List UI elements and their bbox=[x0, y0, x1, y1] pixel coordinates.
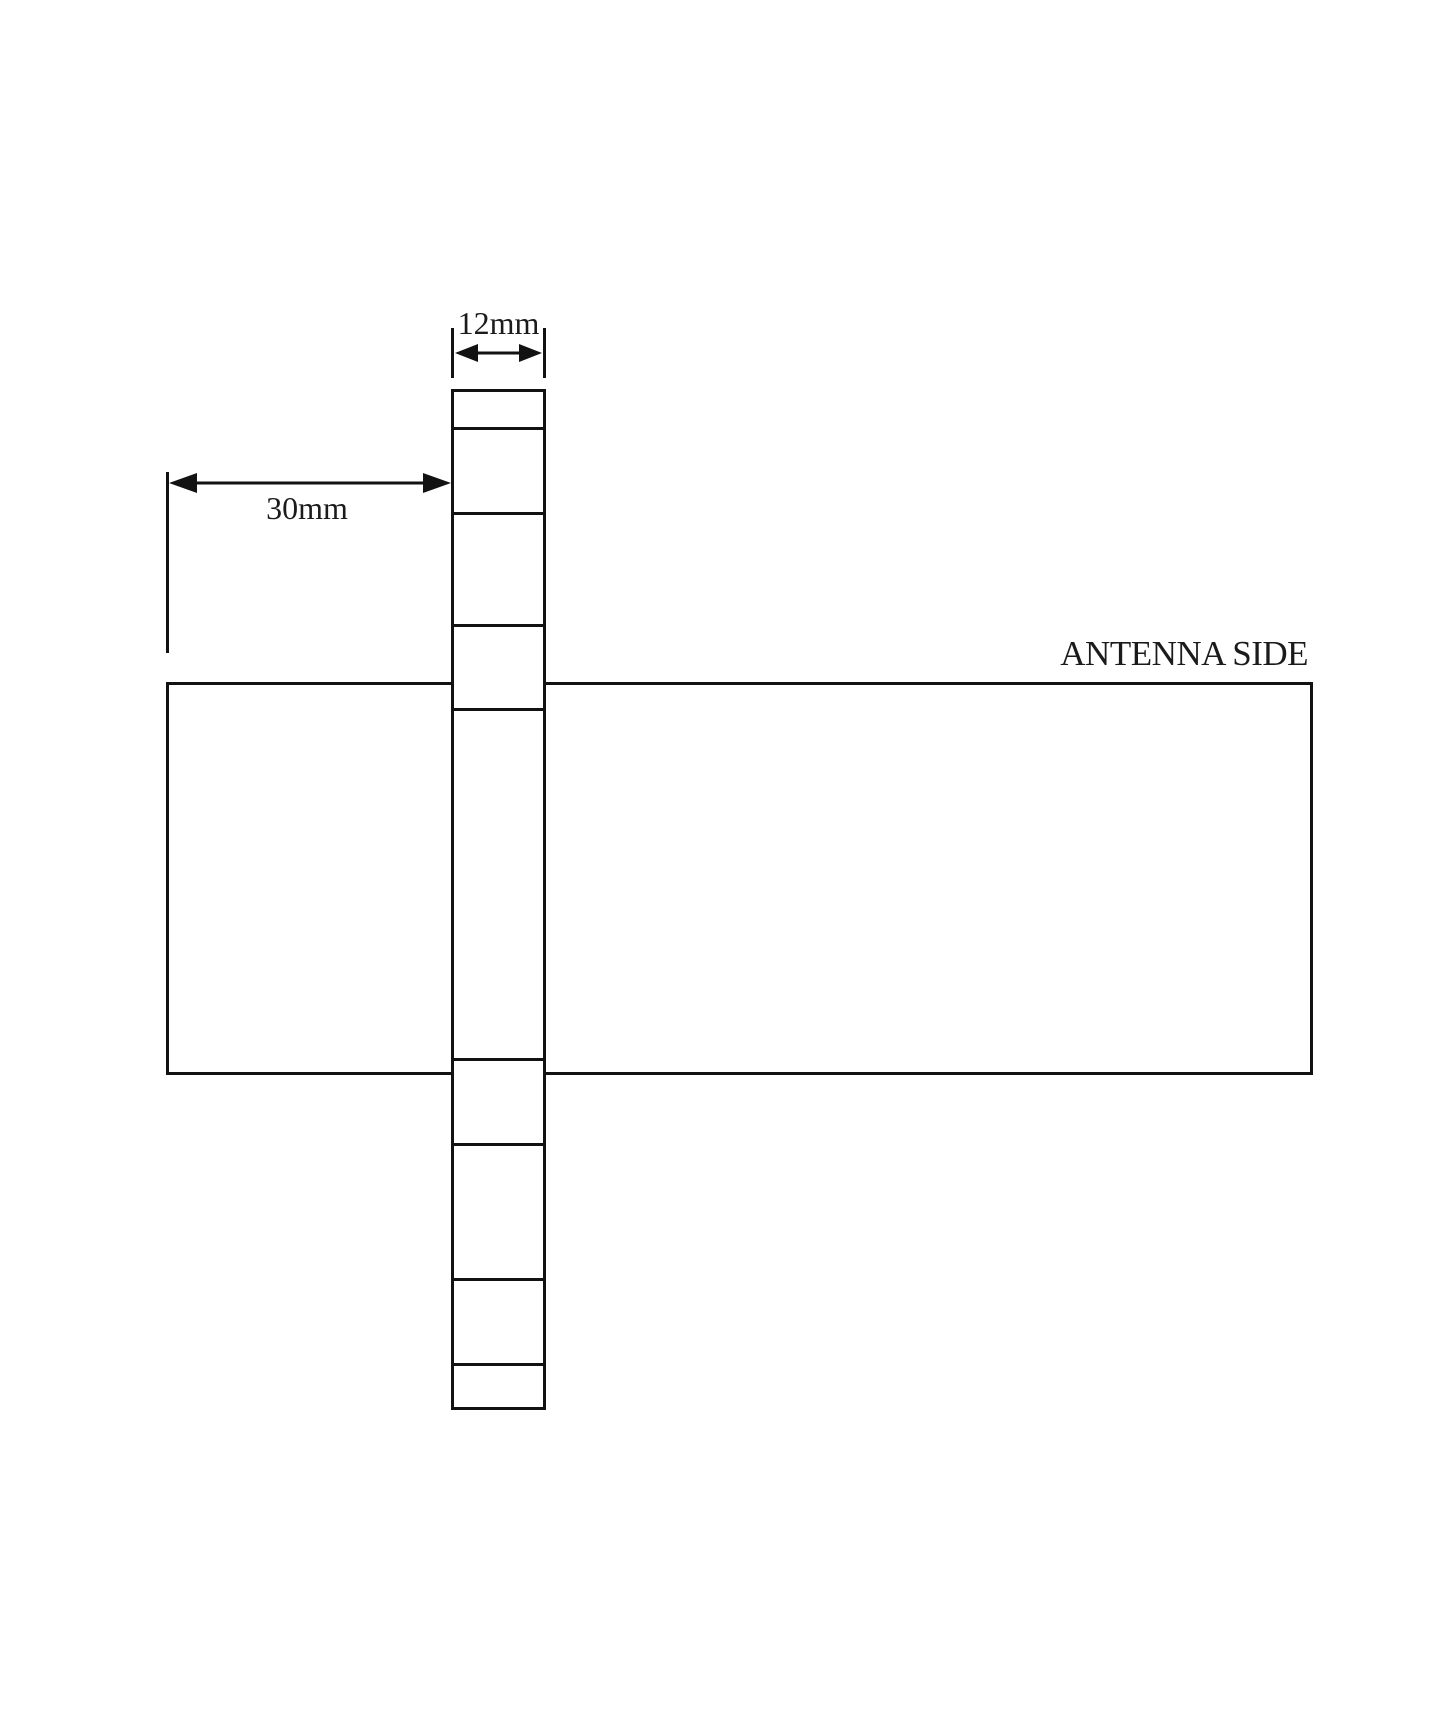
strip-segment bbox=[451, 1363, 546, 1410]
dimension-drawing: ANTENNA SIDE 12mm 30mm bbox=[0, 0, 1445, 1734]
main-rectangle bbox=[166, 682, 1313, 1075]
strip-segment bbox=[451, 512, 546, 627]
antenna-side-label: ANTENNA SIDE bbox=[1060, 636, 1308, 671]
strip-segment bbox=[451, 624, 546, 711]
offset-dimension-label: 30mm bbox=[227, 492, 387, 524]
strip-segment bbox=[451, 1278, 546, 1366]
strip-segment bbox=[451, 389, 546, 430]
offset-dim-extension-line bbox=[166, 472, 169, 653]
double-arrow-icon bbox=[451, 340, 546, 366]
width-dimension-label: 12mm bbox=[431, 307, 566, 339]
strip-segment bbox=[451, 1058, 546, 1146]
strip-segment bbox=[451, 708, 546, 1061]
strip-segment bbox=[451, 1143, 546, 1281]
strip-segment bbox=[451, 427, 546, 515]
vertical-strip bbox=[451, 389, 546, 1410]
